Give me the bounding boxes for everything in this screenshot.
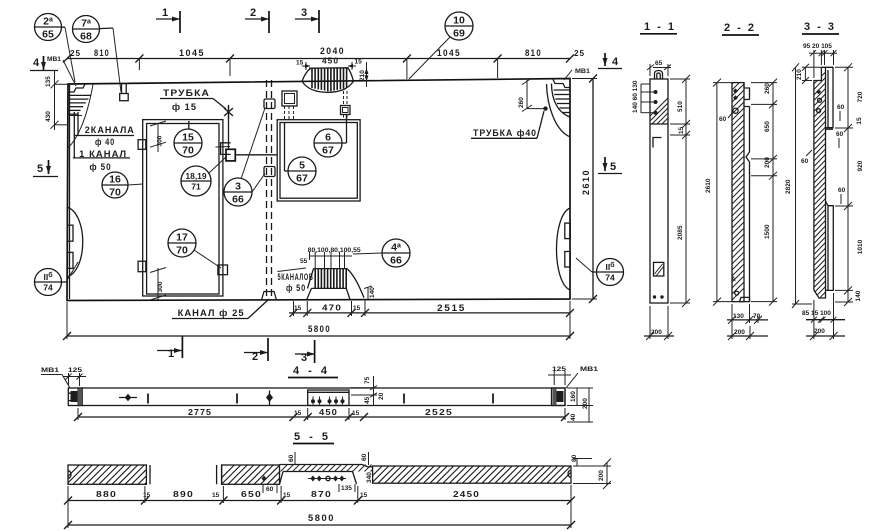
svg-text:720: 720	[857, 91, 864, 102]
svg-text:920: 920	[857, 160, 864, 171]
svg-text:430: 430	[45, 111, 52, 122]
svg-text:15: 15	[182, 132, 194, 144]
svg-text:60: 60	[719, 116, 727, 123]
svg-text:135: 135	[45, 76, 52, 87]
svg-text:15: 15	[283, 492, 291, 499]
svg-text:160: 160	[570, 391, 577, 402]
svg-text:80: 80	[571, 454, 578, 462]
svg-text:300: 300	[157, 281, 164, 292]
svg-text:450: 450	[319, 407, 338, 417]
svg-text:60: 60	[266, 486, 274, 493]
svg-text:55: 55	[300, 258, 308, 265]
svg-text:130: 130	[733, 313, 744, 320]
svg-text:ТРУБКА: ТРУБКА	[163, 88, 210, 98]
svg-text:2КАНАЛА: 2КАНАЛА	[85, 125, 135, 135]
svg-text:60: 60	[836, 131, 844, 138]
svg-text:2: 2	[250, 7, 256, 19]
svg-text:890: 890	[173, 489, 194, 499]
svg-text:70: 70	[753, 313, 761, 320]
svg-text:60: 60	[838, 187, 846, 194]
svg-text:260: 260	[764, 83, 771, 94]
svg-text:17: 17	[176, 232, 188, 244]
svg-text:260: 260	[518, 97, 525, 108]
svg-text:5: 5	[299, 160, 305, 172]
svg-text:470: 470	[322, 303, 342, 313]
svg-text:68: 68	[80, 31, 92, 43]
svg-text:65: 65	[655, 60, 663, 67]
svg-text:А: А	[731, 276, 736, 283]
svg-text:125: 125	[68, 367, 82, 374]
svg-text:ТРУБКА ф40: ТРУБКА ф40	[473, 128, 537, 138]
svg-text:5: 5	[610, 161, 616, 173]
svg-text:2775: 2775	[188, 407, 212, 417]
svg-text:16: 16	[109, 174, 121, 186]
svg-text:880: 880	[96, 489, 117, 499]
svg-text:5 - 5: 5 - 5	[294, 431, 331, 443]
svg-text:3: 3	[301, 7, 307, 19]
svg-text:1045: 1045	[437, 48, 461, 58]
svg-text:КАНАЛ ф 25: КАНАЛ ф 25	[178, 308, 245, 318]
svg-text:75: 75	[364, 376, 371, 384]
svg-text:210: 210	[796, 69, 803, 80]
svg-text:1: 1	[168, 348, 174, 360]
svg-text:135: 135	[341, 485, 352, 492]
svg-text:15: 15	[296, 60, 304, 67]
svg-text:1500: 1500	[764, 224, 771, 239]
svg-text:ф 40: ф 40	[95, 137, 115, 147]
svg-text:МВ1: МВ1	[580, 366, 598, 373]
svg-text:15: 15	[856, 117, 863, 125]
svg-text:140 60 130: 140 60 130	[632, 80, 639, 113]
svg-text:ф 15: ф 15	[172, 102, 197, 112]
svg-text:ф 50: ф 50	[286, 283, 306, 293]
svg-text:200: 200	[764, 157, 771, 168]
svg-text:40: 40	[570, 413, 577, 421]
svg-text:10: 10	[453, 15, 465, 27]
svg-text:МВ1: МВ1	[41, 367, 59, 374]
svg-text:200: 200	[582, 398, 589, 409]
svg-text:140: 140	[369, 287, 376, 298]
svg-text:95 20 105: 95 20 105	[803, 43, 832, 50]
svg-text:74: 74	[43, 283, 53, 293]
svg-text:60: 60	[837, 104, 845, 111]
svg-text:1045: 1045	[179, 48, 205, 58]
svg-text:1 - 1: 1 - 1	[644, 21, 676, 33]
svg-text:6: 6	[325, 132, 331, 144]
svg-text:74: 74	[605, 273, 615, 283]
svg-text:67: 67	[296, 173, 308, 185]
svg-text:1: 1	[162, 7, 168, 19]
svg-text:71: 71	[191, 182, 201, 192]
svg-text:340: 340	[366, 472, 373, 483]
svg-text:15: 15	[352, 410, 360, 417]
svg-text:66: 66	[232, 194, 244, 206]
svg-text:810: 810	[94, 48, 110, 58]
svg-text:3: 3	[235, 181, 241, 193]
svg-text:65: 65	[42, 29, 54, 41]
svg-text:20: 20	[378, 392, 385, 400]
svg-text:5: 5	[37, 163, 43, 175]
svg-text:15: 15	[212, 492, 220, 499]
svg-text:15: 15	[678, 126, 685, 134]
svg-text:60: 60	[361, 453, 368, 461]
svg-text:300: 300	[157, 135, 164, 146]
svg-text:15: 15	[360, 492, 368, 499]
svg-text:2820: 2820	[785, 179, 792, 194]
svg-text:650: 650	[241, 489, 262, 499]
svg-text:25: 25	[70, 48, 81, 58]
svg-text:2610: 2610	[581, 169, 591, 195]
svg-text:60: 60	[288, 454, 295, 462]
svg-text:МВ1: МВ1	[47, 56, 61, 63]
svg-text:69: 69	[453, 28, 465, 40]
svg-text:4 - 4: 4 - 4	[293, 365, 330, 377]
svg-text:510: 510	[677, 101, 684, 112]
svg-text:650: 650	[764, 121, 771, 132]
svg-text:ф 50: ф 50	[90, 162, 112, 172]
svg-text:210: 210	[359, 70, 366, 81]
svg-text:15: 15	[294, 410, 302, 417]
svg-text:2515: 2515	[437, 303, 466, 313]
svg-text:70: 70	[182, 145, 194, 157]
svg-text:45: 45	[364, 396, 371, 404]
svg-text:2 - 2: 2 - 2	[724, 22, 756, 34]
svg-text:67: 67	[322, 145, 334, 157]
svg-text:5800: 5800	[308, 324, 331, 334]
svg-text:1010: 1010	[857, 239, 864, 254]
svg-text:МВ1: МВ1	[575, 68, 590, 75]
svg-text:15: 15	[294, 305, 302, 312]
svg-text:5800: 5800	[308, 513, 335, 523]
svg-text:200: 200	[814, 328, 825, 335]
svg-text:18,19: 18,19	[185, 171, 207, 181]
svg-text:80,100,80,100,55: 80,100,80,100,55	[308, 247, 361, 254]
svg-text:5КАНАЛОВ: 5КАНАЛОВ	[278, 272, 314, 282]
svg-text:70: 70	[109, 187, 121, 199]
svg-text:2040: 2040	[320, 46, 345, 56]
svg-text:4: 4	[33, 57, 40, 69]
svg-text:2525: 2525	[425, 407, 453, 417]
svg-text:15: 15	[143, 492, 151, 499]
svg-text:60: 60	[801, 158, 809, 165]
svg-text:25: 25	[574, 48, 585, 58]
svg-text:870: 870	[311, 489, 332, 499]
svg-text:200: 200	[598, 470, 605, 481]
svg-text:15: 15	[355, 59, 363, 66]
svg-text:66: 66	[390, 255, 402, 267]
svg-text:70: 70	[176, 245, 188, 257]
svg-text:3 - 3: 3 - 3	[804, 21, 836, 33]
svg-text:200: 200	[651, 329, 662, 336]
svg-text:2450: 2450	[453, 489, 480, 499]
svg-text:2085: 2085	[677, 225, 684, 240]
svg-text:2610: 2610	[705, 178, 712, 193]
svg-text:810: 810	[525, 48, 542, 58]
svg-text:140: 140	[855, 290, 862, 301]
svg-text:85 15 100: 85 15 100	[802, 310, 831, 317]
svg-text:200: 200	[734, 329, 745, 336]
svg-text:4: 4	[612, 56, 619, 68]
svg-text:450: 450	[322, 56, 339, 66]
svg-text:15: 15	[353, 305, 361, 312]
